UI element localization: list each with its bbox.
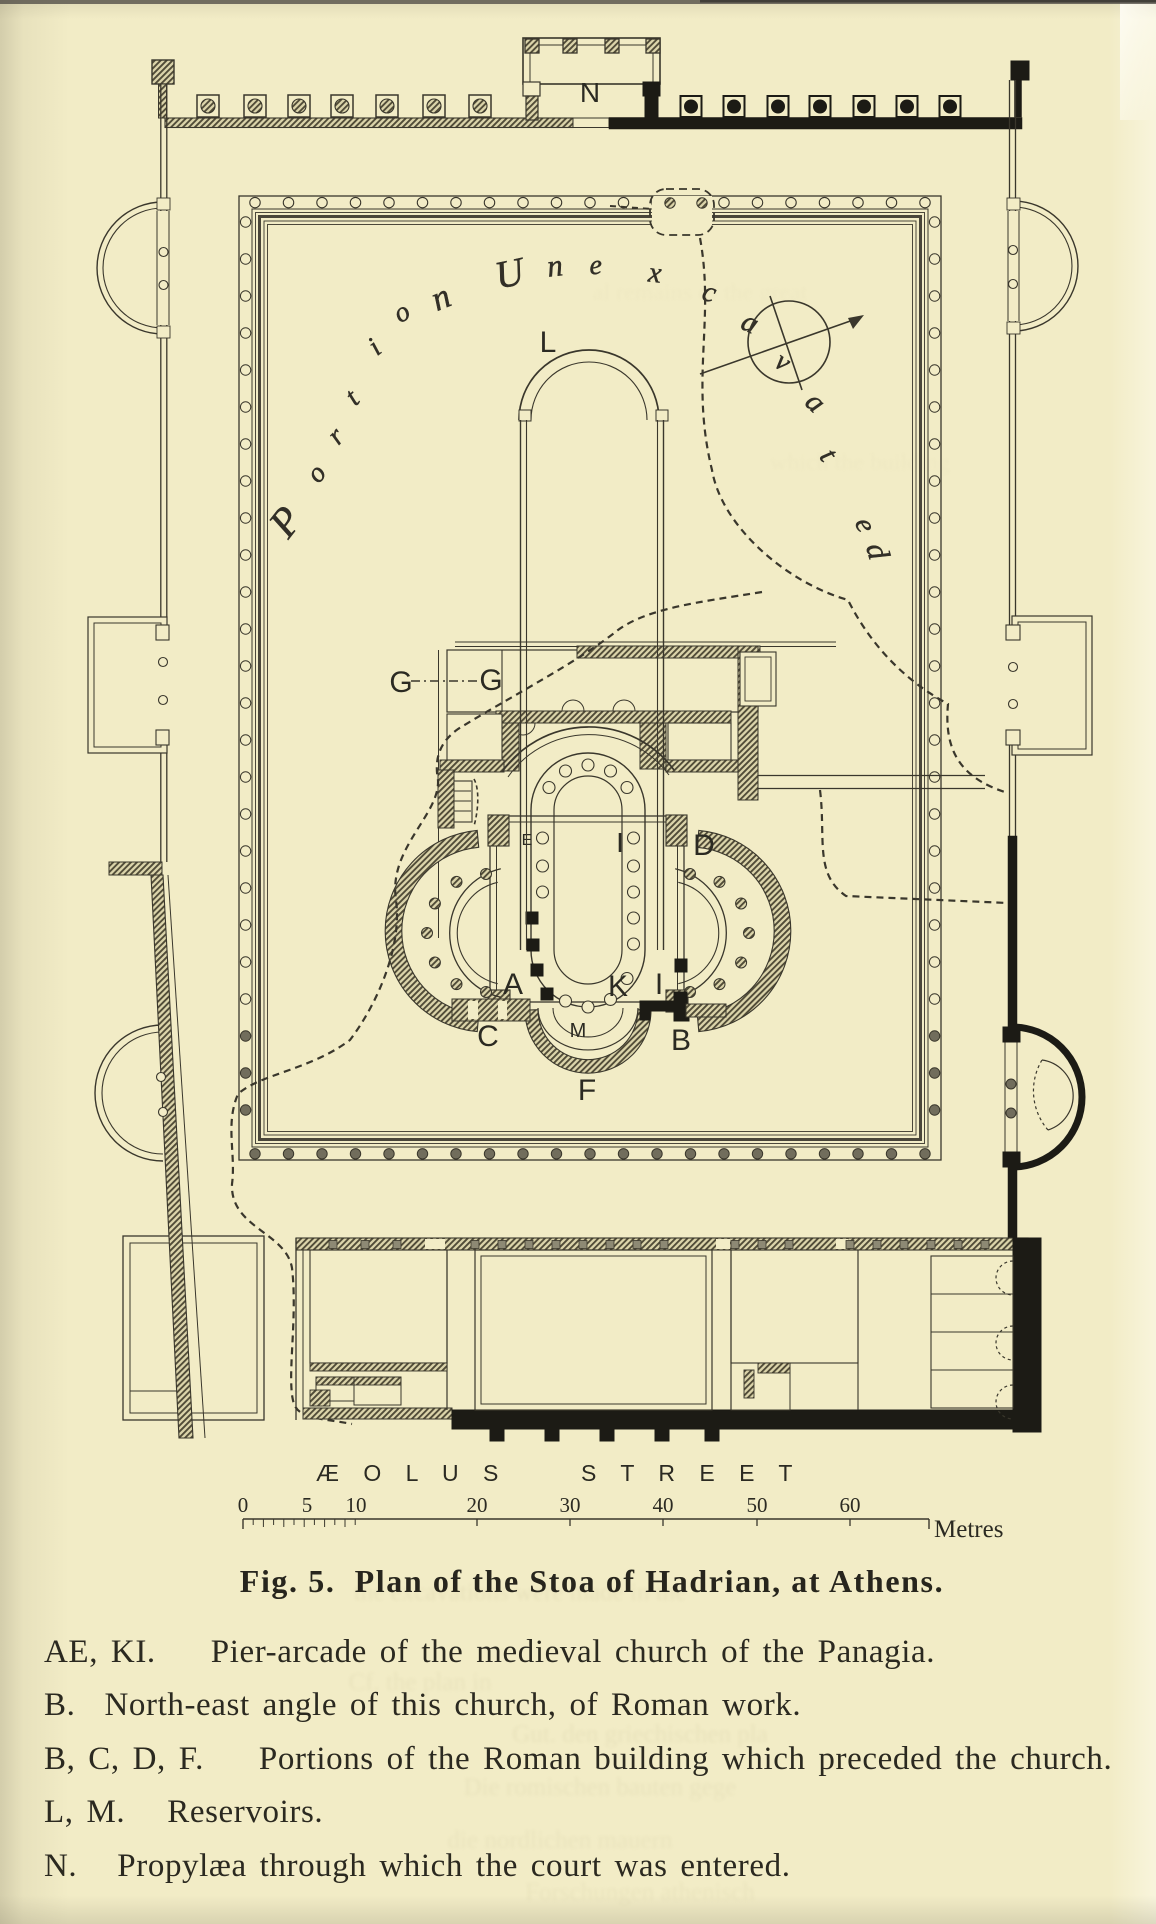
svg-text:40: 40 — [653, 1493, 674, 1517]
svg-text:A: A — [503, 968, 523, 1001]
svg-text:Æ O L U S: Æ O L U S — [316, 1460, 507, 1486]
svg-text:0: 0 — [238, 1493, 249, 1517]
svg-text:N: N — [580, 77, 600, 108]
svg-text:10: 10 — [346, 1493, 367, 1517]
svg-text:Fig. 5. Plan of the Stoa of H: Fig. 5. Plan of the Stoa of Hadrian, at … — [240, 1563, 944, 1599]
svg-text:L: L — [540, 326, 557, 359]
svg-text:G: G — [389, 666, 412, 699]
svg-text:S T R E E T: S T R E E T — [581, 1460, 801, 1486]
svg-text:60: 60 — [840, 1493, 861, 1517]
svg-text:B.North-east angle of this chu: B.North-east angle of this church, of Ro… — [44, 1687, 801, 1723]
svg-text:I: I — [616, 827, 624, 858]
svg-text:Metres: Metres — [934, 1516, 1003, 1543]
svg-text:B: B — [671, 1024, 691, 1057]
svg-text:M: M — [570, 1020, 587, 1042]
svg-text:G: G — [479, 664, 502, 697]
svg-text:which the building: which the building — [770, 450, 950, 476]
svg-text:30: 30 — [560, 1493, 581, 1517]
svg-text:Die romischen bauten gege: Die romischen bauten gege — [464, 1774, 737, 1801]
svg-text:L, M.Reservoirs.: L, M.Reservoirs. — [44, 1794, 323, 1830]
svg-text:K: K — [608, 970, 628, 1003]
svg-text:5: 5 — [302, 1493, 313, 1517]
svg-text:F: F — [578, 1074, 596, 1107]
svg-text:50: 50 — [747, 1493, 768, 1517]
svg-text:e: e — [589, 250, 603, 281]
svg-text:D: D — [693, 829, 715, 862]
svg-text:I: I — [655, 968, 663, 1001]
svg-text:20: 20 — [467, 1493, 488, 1517]
svg-text:C: C — [477, 1020, 499, 1053]
svg-text:N.Propylæa through which the c: N.Propylæa through which the court was e… — [44, 1848, 791, 1884]
